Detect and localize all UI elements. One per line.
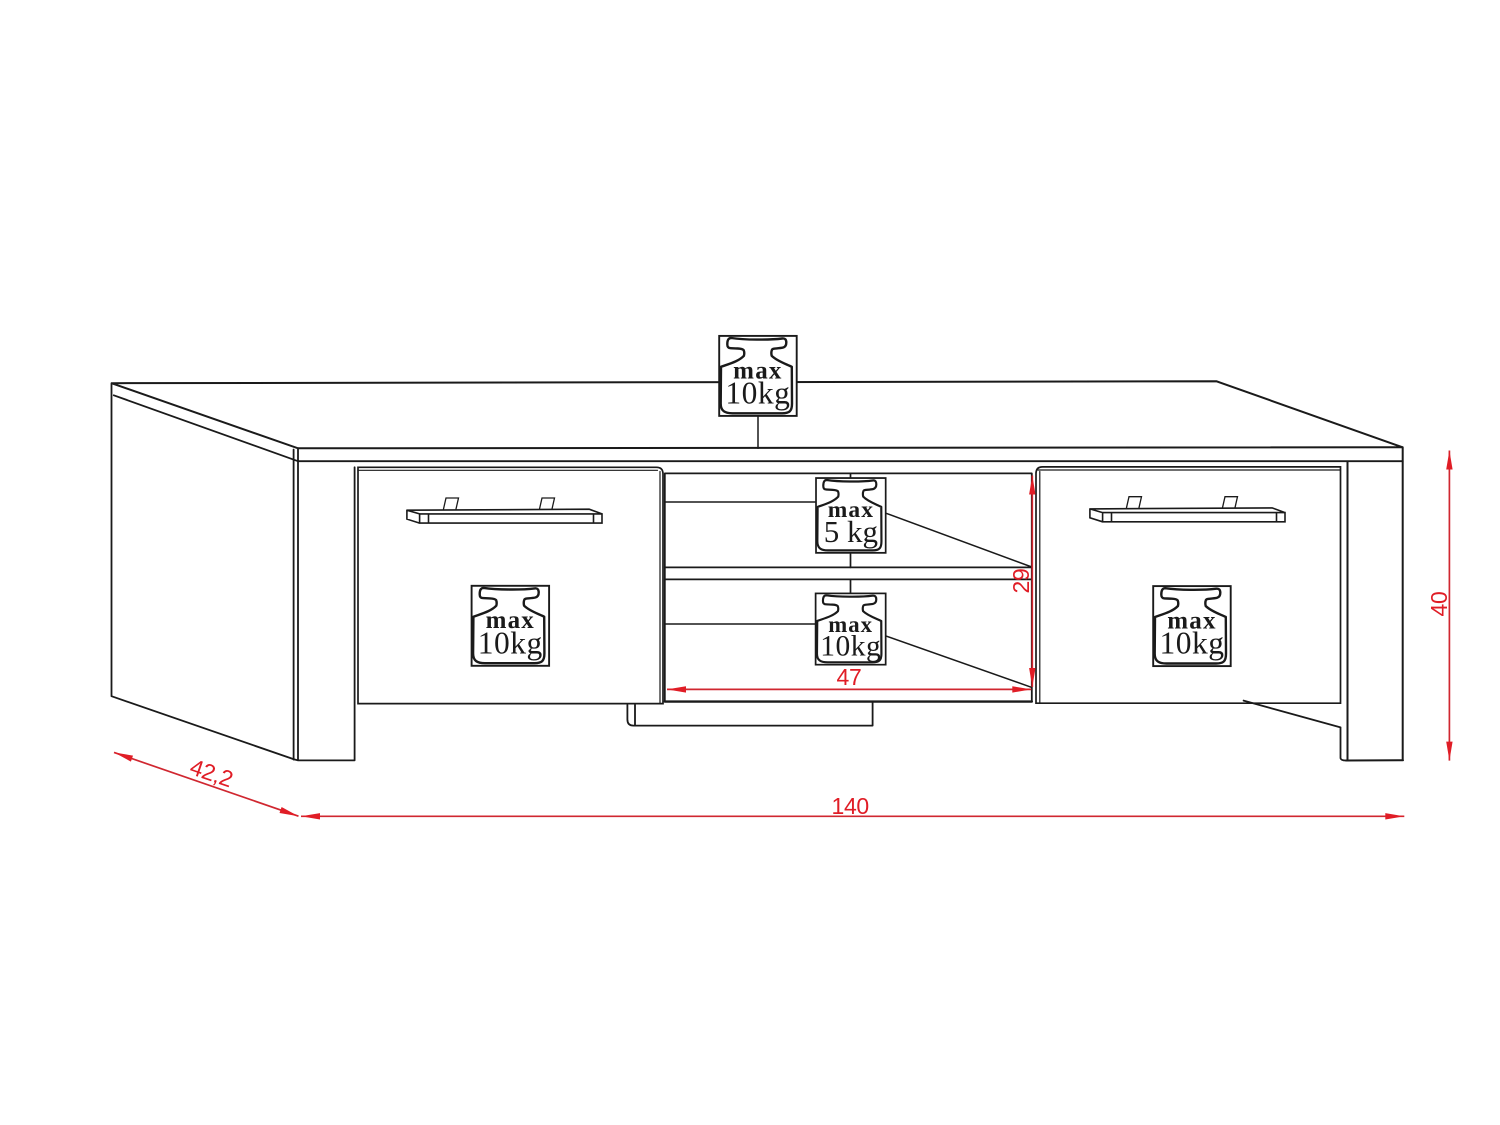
svg-text:29: 29 [1008,569,1034,594]
svg-text:140: 140 [831,793,868,819]
svg-text:10kg: 10kg [725,376,790,411]
svg-text:40: 40 [1426,592,1452,617]
svg-text:10kg: 10kg [820,631,881,663]
svg-text:5 kg: 5 kg [824,514,878,549]
svg-text:10kg: 10kg [478,626,543,661]
svg-text:10kg: 10kg [1160,626,1225,661]
svg-text:47: 47 [837,664,862,690]
